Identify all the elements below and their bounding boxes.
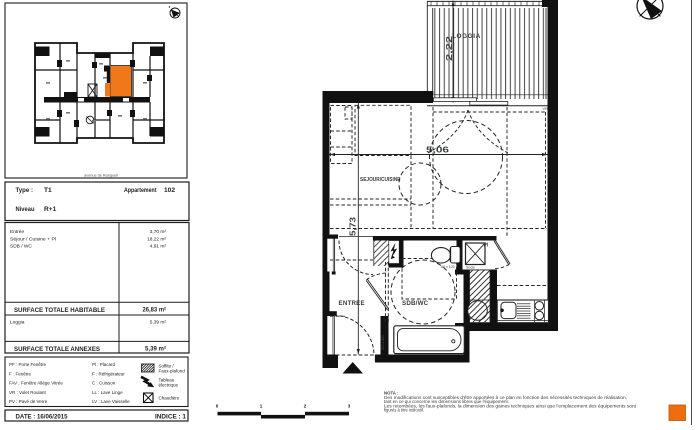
- svg-text:figurés à titre indicatif.: figurés à titre indicatif.: [384, 408, 424, 413]
- svg-text:5,39 m²: 5,39 m²: [145, 346, 166, 353]
- svg-text:F : Réfrigérateur: F : Réfrigérateur: [92, 371, 125, 376]
- svg-text:T1: T1: [44, 187, 52, 194]
- svg-text:INDICE : 1: INDICE : 1: [155, 413, 187, 420]
- svg-text:Entrée: Entrée: [10, 229, 24, 235]
- svg-text:2: 2: [304, 404, 307, 409]
- svg-text:FAV : Fenêtre Allège Vitrée: FAV : Fenêtre Allège Vitrée: [9, 381, 63, 386]
- svg-text:5,06: 5,06: [426, 145, 449, 155]
- svg-text:18,22 m²: 18,22 m²: [147, 236, 166, 242]
- svg-text:Pl: Pl: [484, 243, 489, 249]
- svg-text:5,73: 5,73: [348, 217, 358, 236]
- svg-text:Pl : Placard: Pl : Placard: [92, 362, 116, 367]
- svg-text:LL : Lave Linge: LL : Lave Linge: [92, 390, 123, 395]
- svg-text:4,91 m²: 4,91 m²: [150, 244, 167, 250]
- svg-text:Faux-plafond: Faux-plafond: [159, 369, 186, 374]
- svg-text:SDB / WC: SDB / WC: [10, 244, 32, 250]
- svg-text:1: 1: [260, 404, 263, 409]
- svg-text:0: 0: [216, 404, 219, 409]
- svg-text:Socle: Socle: [466, 266, 475, 270]
- svg-text:60 x 120: 60 x 120: [441, 265, 455, 269]
- svg-text:Séjour / Cuisine + Pl: Séjour / Cuisine + Pl: [10, 236, 56, 242]
- svg-text:LV : Lave Vaisselle: LV : Lave Vaisselle: [92, 399, 130, 404]
- svg-text:SDB/WC: SDB/WC: [402, 300, 429, 307]
- svg-text:VR: VR: [543, 107, 549, 111]
- svg-text:DATE : 16/06/2015: DATE : 16/06/2015: [16, 413, 69, 420]
- svg-text:VR : Volet Roulant: VR : Volet Roulant: [9, 390, 47, 395]
- svg-text:SEJOUR/CUISINE: SEJOUR/CUISINE: [360, 177, 401, 183]
- svg-text:F : Fenêtre: F : Fenêtre: [9, 371, 32, 376]
- svg-text:R+1: R+1: [44, 206, 57, 213]
- svg-text:ENTREE: ENTREE: [339, 300, 365, 307]
- svg-text:Loggia: Loggia: [10, 320, 25, 326]
- svg-text:102: 102: [164, 187, 175, 194]
- svg-text:3,70 m²: 3,70 m²: [150, 229, 167, 235]
- svg-text:électrique: électrique: [159, 383, 179, 388]
- svg-text:5,39 m²: 5,39 m²: [150, 320, 167, 326]
- svg-text:PV : Pavé de Verre: PV : Pavé de Verre: [9, 399, 48, 404]
- svg-text:LOGGIA: LOGGIA: [452, 33, 481, 40]
- svg-text:Niveau: Niveau: [16, 206, 35, 213]
- svg-text:SURFACE TOTALE ANNEXES: SURFACE TOTALE ANNEXES: [14, 346, 101, 353]
- svg-text:PF : Porte Fenêtre: PF : Porte Fenêtre: [9, 362, 47, 367]
- svg-text:3: 3: [348, 404, 351, 409]
- svg-text:SURFACE TOTALE HABITABLE: SURFACE TOTALE HABITABLE: [14, 307, 106, 314]
- svg-text:520 x 520: 520 x 520: [381, 335, 385, 350]
- svg-text:Appartement: Appartement: [124, 187, 157, 194]
- svg-text:C : Cuisson: C : Cuisson: [92, 381, 116, 386]
- svg-text:26,83 m²: 26,83 m²: [143, 307, 167, 314]
- svg-text:Chaudière: Chaudière: [159, 396, 180, 401]
- svg-text:Type :: Type :: [16, 187, 34, 194]
- svg-text:avenue de Rangueil: avenue de Rangueil: [84, 174, 118, 178]
- svg-text:2,22: 2,22: [444, 35, 454, 61]
